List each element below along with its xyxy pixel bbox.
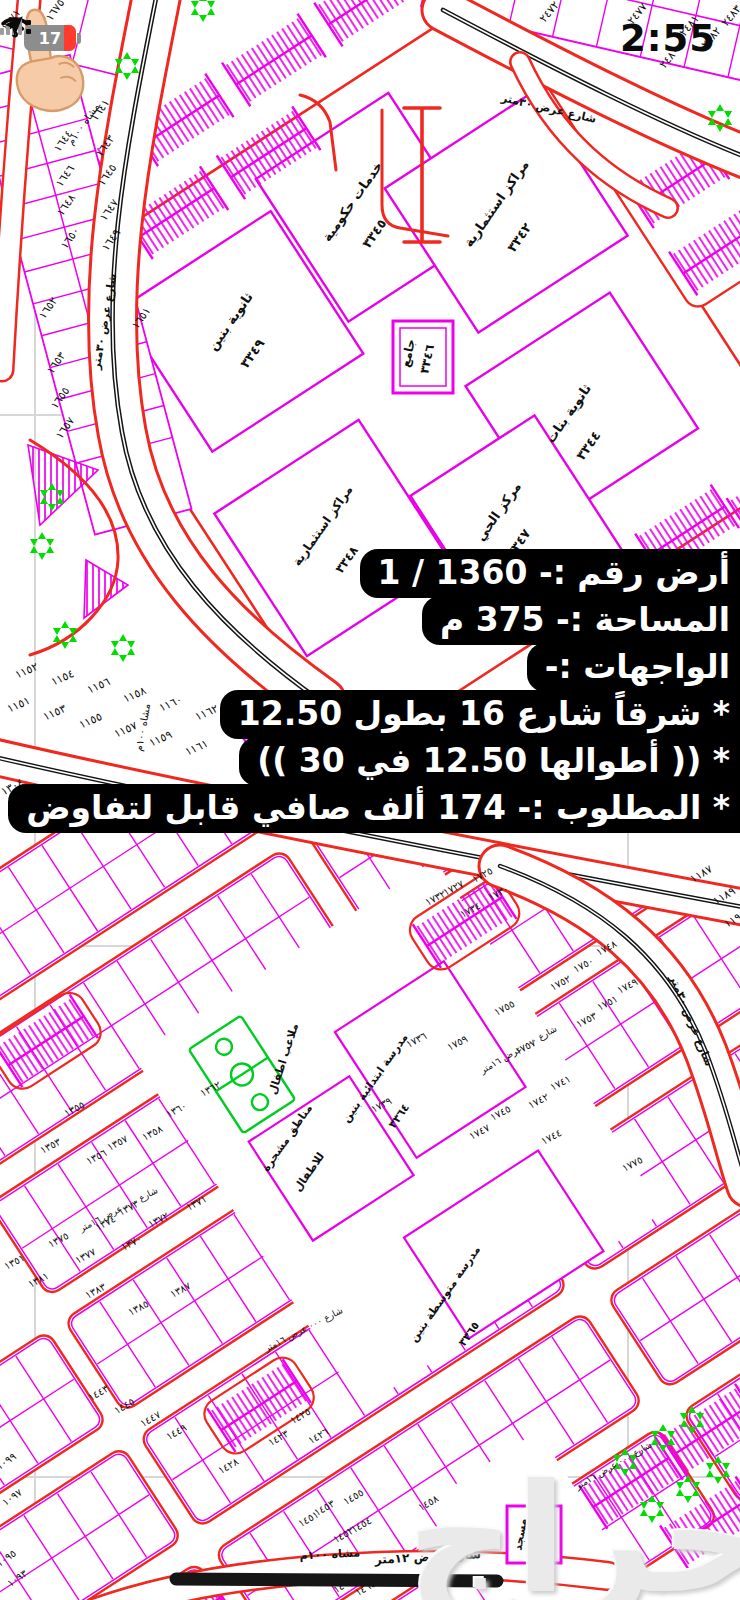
status-bar: 17: [0, 14, 740, 62]
map-label: ١٧٥٢: [548, 973, 572, 993]
listing-overlay: أرض رقم :- 1360 / 1 المساحة :- 375 م الو…: [0, 551, 740, 833]
location-arrow-icon: [0, 14, 26, 40]
map-label: ١٧٥٠: [571, 955, 595, 975]
watermark: حراج: [407, 1452, 740, 1600]
overlay-line-east-street: * شرقاً شارع 16 بطول 12.50: [220, 690, 740, 739]
map-label: ١٣٥٣: [38, 1136, 63, 1156]
map-label: ١٣٥١: [2, 1252, 26, 1272]
overlay-line-plot-number: أرض رقم :- 1360 / 1: [360, 549, 740, 598]
overlay-line-facades: الواجهات :-: [527, 643, 740, 692]
phone-screenshot: مراكز استثمارية٣٣٤٢خدمات حكومية٣٣٤٥ثانوي…: [0, 0, 740, 1600]
overlay-line-price: * المطلوب :- 174 ألف صافي قابل لتفاوض: [8, 784, 740, 833]
clock: 2:55: [620, 17, 716, 60]
overlay-line-area: المساحة :- 375 م: [422, 596, 740, 645]
overlay-line-dimensions: * (( أطوالها 12.50 في 30 )): [239, 737, 740, 786]
